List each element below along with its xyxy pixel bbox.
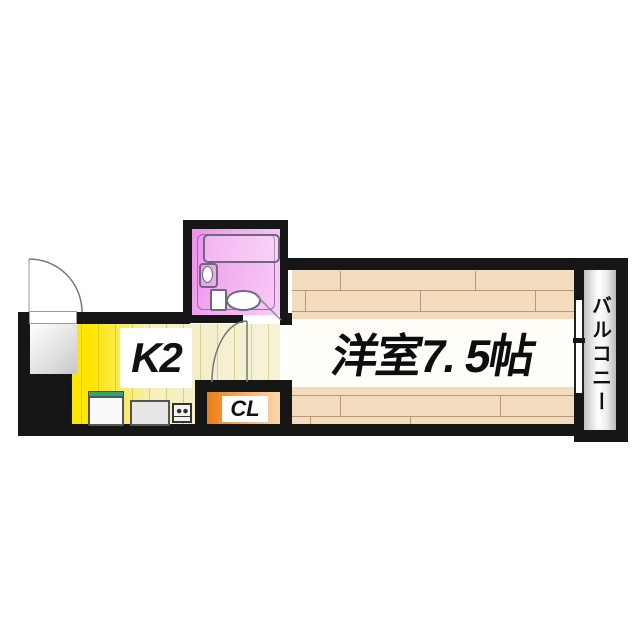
wall-room-left-lower [280,385,292,436]
wall-closet-left [195,380,207,424]
wall-top-left-a [18,312,29,324]
kitchen-label: K2 [131,334,181,382]
room-doorway [280,325,292,385]
window [574,300,584,393]
wall-closet-top [195,380,292,392]
wall-balcony-bottom [574,430,628,442]
entrance-door-leaf [29,311,77,324]
stove-icon [172,403,192,423]
kitchen-sink [88,396,124,426]
bathroom-sink-basin [202,266,213,283]
bathroom-doorway [243,315,280,323]
entrance-floor [30,324,77,374]
entrance-door-arc [29,259,82,312]
balcony-label: バルコニー [584,280,616,430]
room-label: 洋室7. 5帖 [327,320,539,386]
closet-label-box: CL [222,396,268,422]
closet-label: CL [230,396,259,422]
wall-top-main [283,258,628,270]
toilet-bowl [226,290,261,311]
wall-top-left-b [77,312,190,324]
wall-room-left-upper [280,313,292,325]
floorplan: CL K2 洋室7. 5帖 バルコニー [0,0,640,640]
bathtub [203,234,280,263]
kitchen-label-box: K2 [120,328,192,388]
kitchen-counter [130,400,170,426]
wall-window-stub-top [574,270,584,300]
toilet-tank [210,289,227,311]
wall-balcony-right [616,258,628,442]
room-label-band: 洋室7. 5帖 [292,319,574,387]
